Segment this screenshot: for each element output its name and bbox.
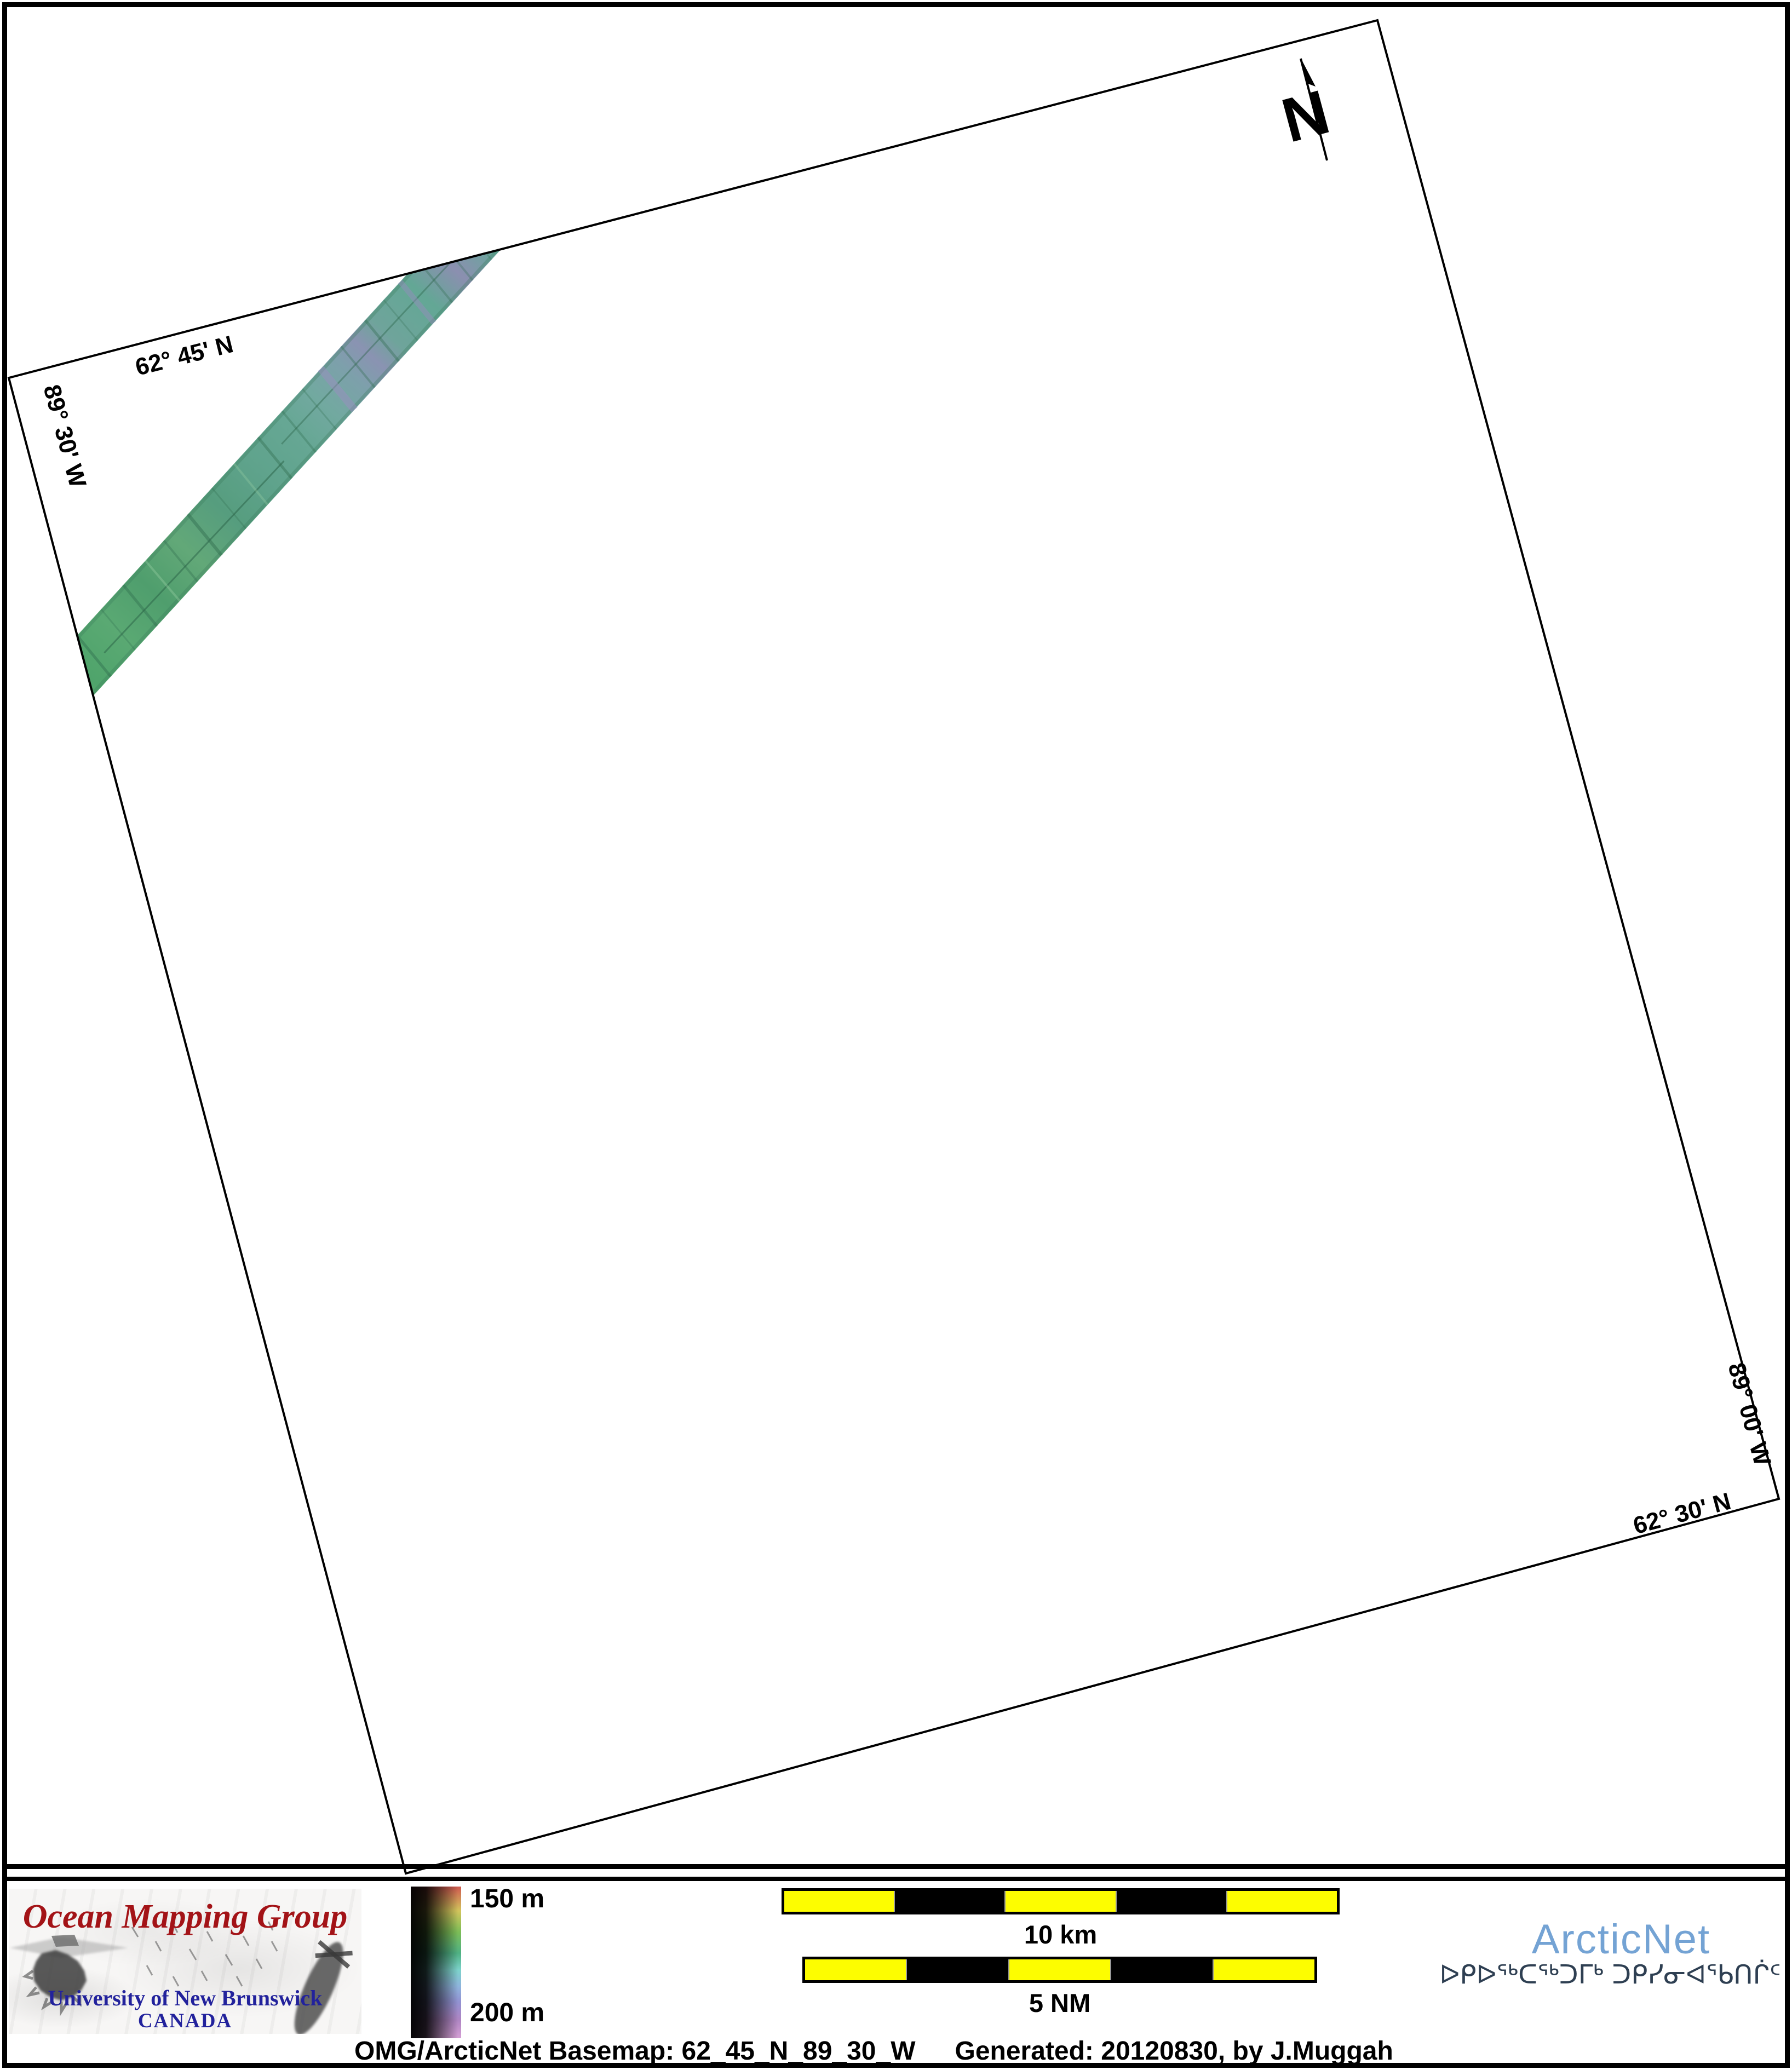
scalebar-nautical-miles xyxy=(802,1957,1317,1983)
scalebar-segment xyxy=(1008,1959,1110,1980)
scalebar-segment xyxy=(894,1891,1004,1912)
omg-country: CANADA xyxy=(9,2009,361,2033)
footer-basemap-id: OMG/ArcticNet Basemap: 62_45_N_89_30_W xyxy=(354,2036,916,2066)
omg-logo: Ocean Mapping Group University of New Br… xyxy=(9,1889,361,2034)
scalebar-segment xyxy=(784,1891,894,1912)
footer-generated: Generated: 20120830, by J.Muggah xyxy=(955,2036,1393,2066)
scalebar-nm-label: 5 NM xyxy=(802,1988,1317,2018)
sonar-head-shape xyxy=(51,1935,79,1947)
scalebar-kilometres xyxy=(782,1888,1340,1914)
scalebar-segment xyxy=(805,1959,906,1980)
basemap-page: 62° 45' N 89° 30' W 89° 00' W 62° 30' N … xyxy=(0,0,1792,2070)
depth-colorbar xyxy=(411,1887,461,2038)
legend-panel-divider xyxy=(2,1877,1790,1881)
map-area: 62° 45' N 89° 30' W 89° 00' W 62° 30' N … xyxy=(0,0,1792,1879)
scalebar-segment xyxy=(1226,1891,1337,1912)
footer-caption: OMG/ArcticNet Basemap: 62_45_N_89_30_W G… xyxy=(354,2036,1393,2066)
scalebar-segment xyxy=(1116,1891,1226,1912)
omg-institution: University of New Brunswick xyxy=(9,1985,361,2011)
scalebar-segment xyxy=(1110,1959,1212,1980)
scalebar-km-label: 10 km xyxy=(782,1919,1340,1950)
omg-title: Ocean Mapping Group xyxy=(9,1898,361,1936)
arcticnet-inuktitut-name: ᐅᑭᐅᖅᑕᖅᑐᒥᒃ ᑐᑭᓯᓂᐊᖃᑎᒌᑦ xyxy=(1429,1959,1791,1990)
depth-scale-top-label: 150 m xyxy=(470,1886,544,1912)
map-frame-bottom-line xyxy=(2,1864,1790,1869)
map-boundary-fill xyxy=(9,20,1779,1873)
depth-scale-bottom-label: 200 m xyxy=(470,2000,544,2026)
arcticnet-logo: ArcticNet xyxy=(1457,1916,1785,1963)
scalebar-segment xyxy=(906,1959,1008,1980)
scalebar-segment xyxy=(1213,1959,1314,1980)
scalebar-segment xyxy=(1004,1891,1115,1912)
